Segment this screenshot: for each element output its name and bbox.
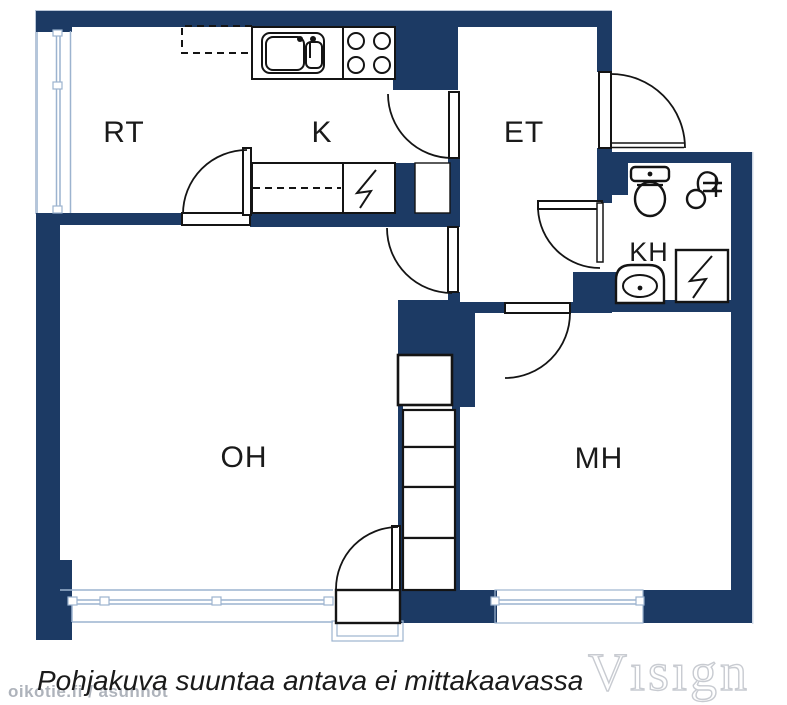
- door-kitchen-et: [388, 92, 459, 158]
- wardrobe-closet-icon: [403, 410, 455, 447]
- wardrobe-closet-icon: [403, 487, 455, 538]
- shower-icon: [687, 172, 722, 208]
- wardrobe-closet-icon: [403, 447, 455, 487]
- floor-plan-page: RT K ET KH OH MH oikotie.fi / asunnot Po…: [0, 0, 787, 705]
- window-bottom-right-icon: [495, 590, 643, 623]
- door-rt: [182, 148, 251, 225]
- washbasin-icon: [616, 265, 664, 303]
- door-et-oh: [387, 227, 458, 293]
- electric-appliance-icon: [343, 163, 395, 213]
- wardrobe-closet-icon: [398, 355, 452, 405]
- door-mh: [505, 303, 570, 378]
- door-entrance: [599, 72, 685, 148]
- room-label-mh: MH: [575, 442, 624, 475]
- electric-appliance-icon: [676, 250, 728, 302]
- window-left-wall-icon: [37, 31, 71, 213]
- room-label-k: K: [311, 116, 332, 149]
- room-label-et: ET: [504, 116, 544, 149]
- door-balcony: [336, 526, 400, 623]
- wardrobe-closets: [398, 355, 455, 590]
- dishwasher-counter-icon: [252, 163, 343, 213]
- room-label-rt: RT: [103, 116, 144, 149]
- shaft-box: [415, 163, 450, 213]
- room-label-kh: KH: [629, 237, 669, 267]
- door-kh: [538, 201, 603, 268]
- toilet-icon: [631, 167, 669, 216]
- room-label-oh: OH: [221, 441, 268, 474]
- floor-plan-drawing: RT K ET KH OH MH oikotie.fi / asunnot Po…: [0, 0, 787, 705]
- bathroom-fixtures: [616, 167, 728, 303]
- brand-watermark: Vısıgn: [588, 642, 750, 702]
- caption: Pohjakuva suuntaa antava ei mittakaavass…: [37, 665, 583, 696]
- kitchen-sink-icon: [252, 27, 343, 79]
- window-bottom-left-icon: [60, 590, 333, 622]
- wardrobe-closet-icon: [403, 538, 455, 590]
- stove-burners-icon: [343, 27, 395, 79]
